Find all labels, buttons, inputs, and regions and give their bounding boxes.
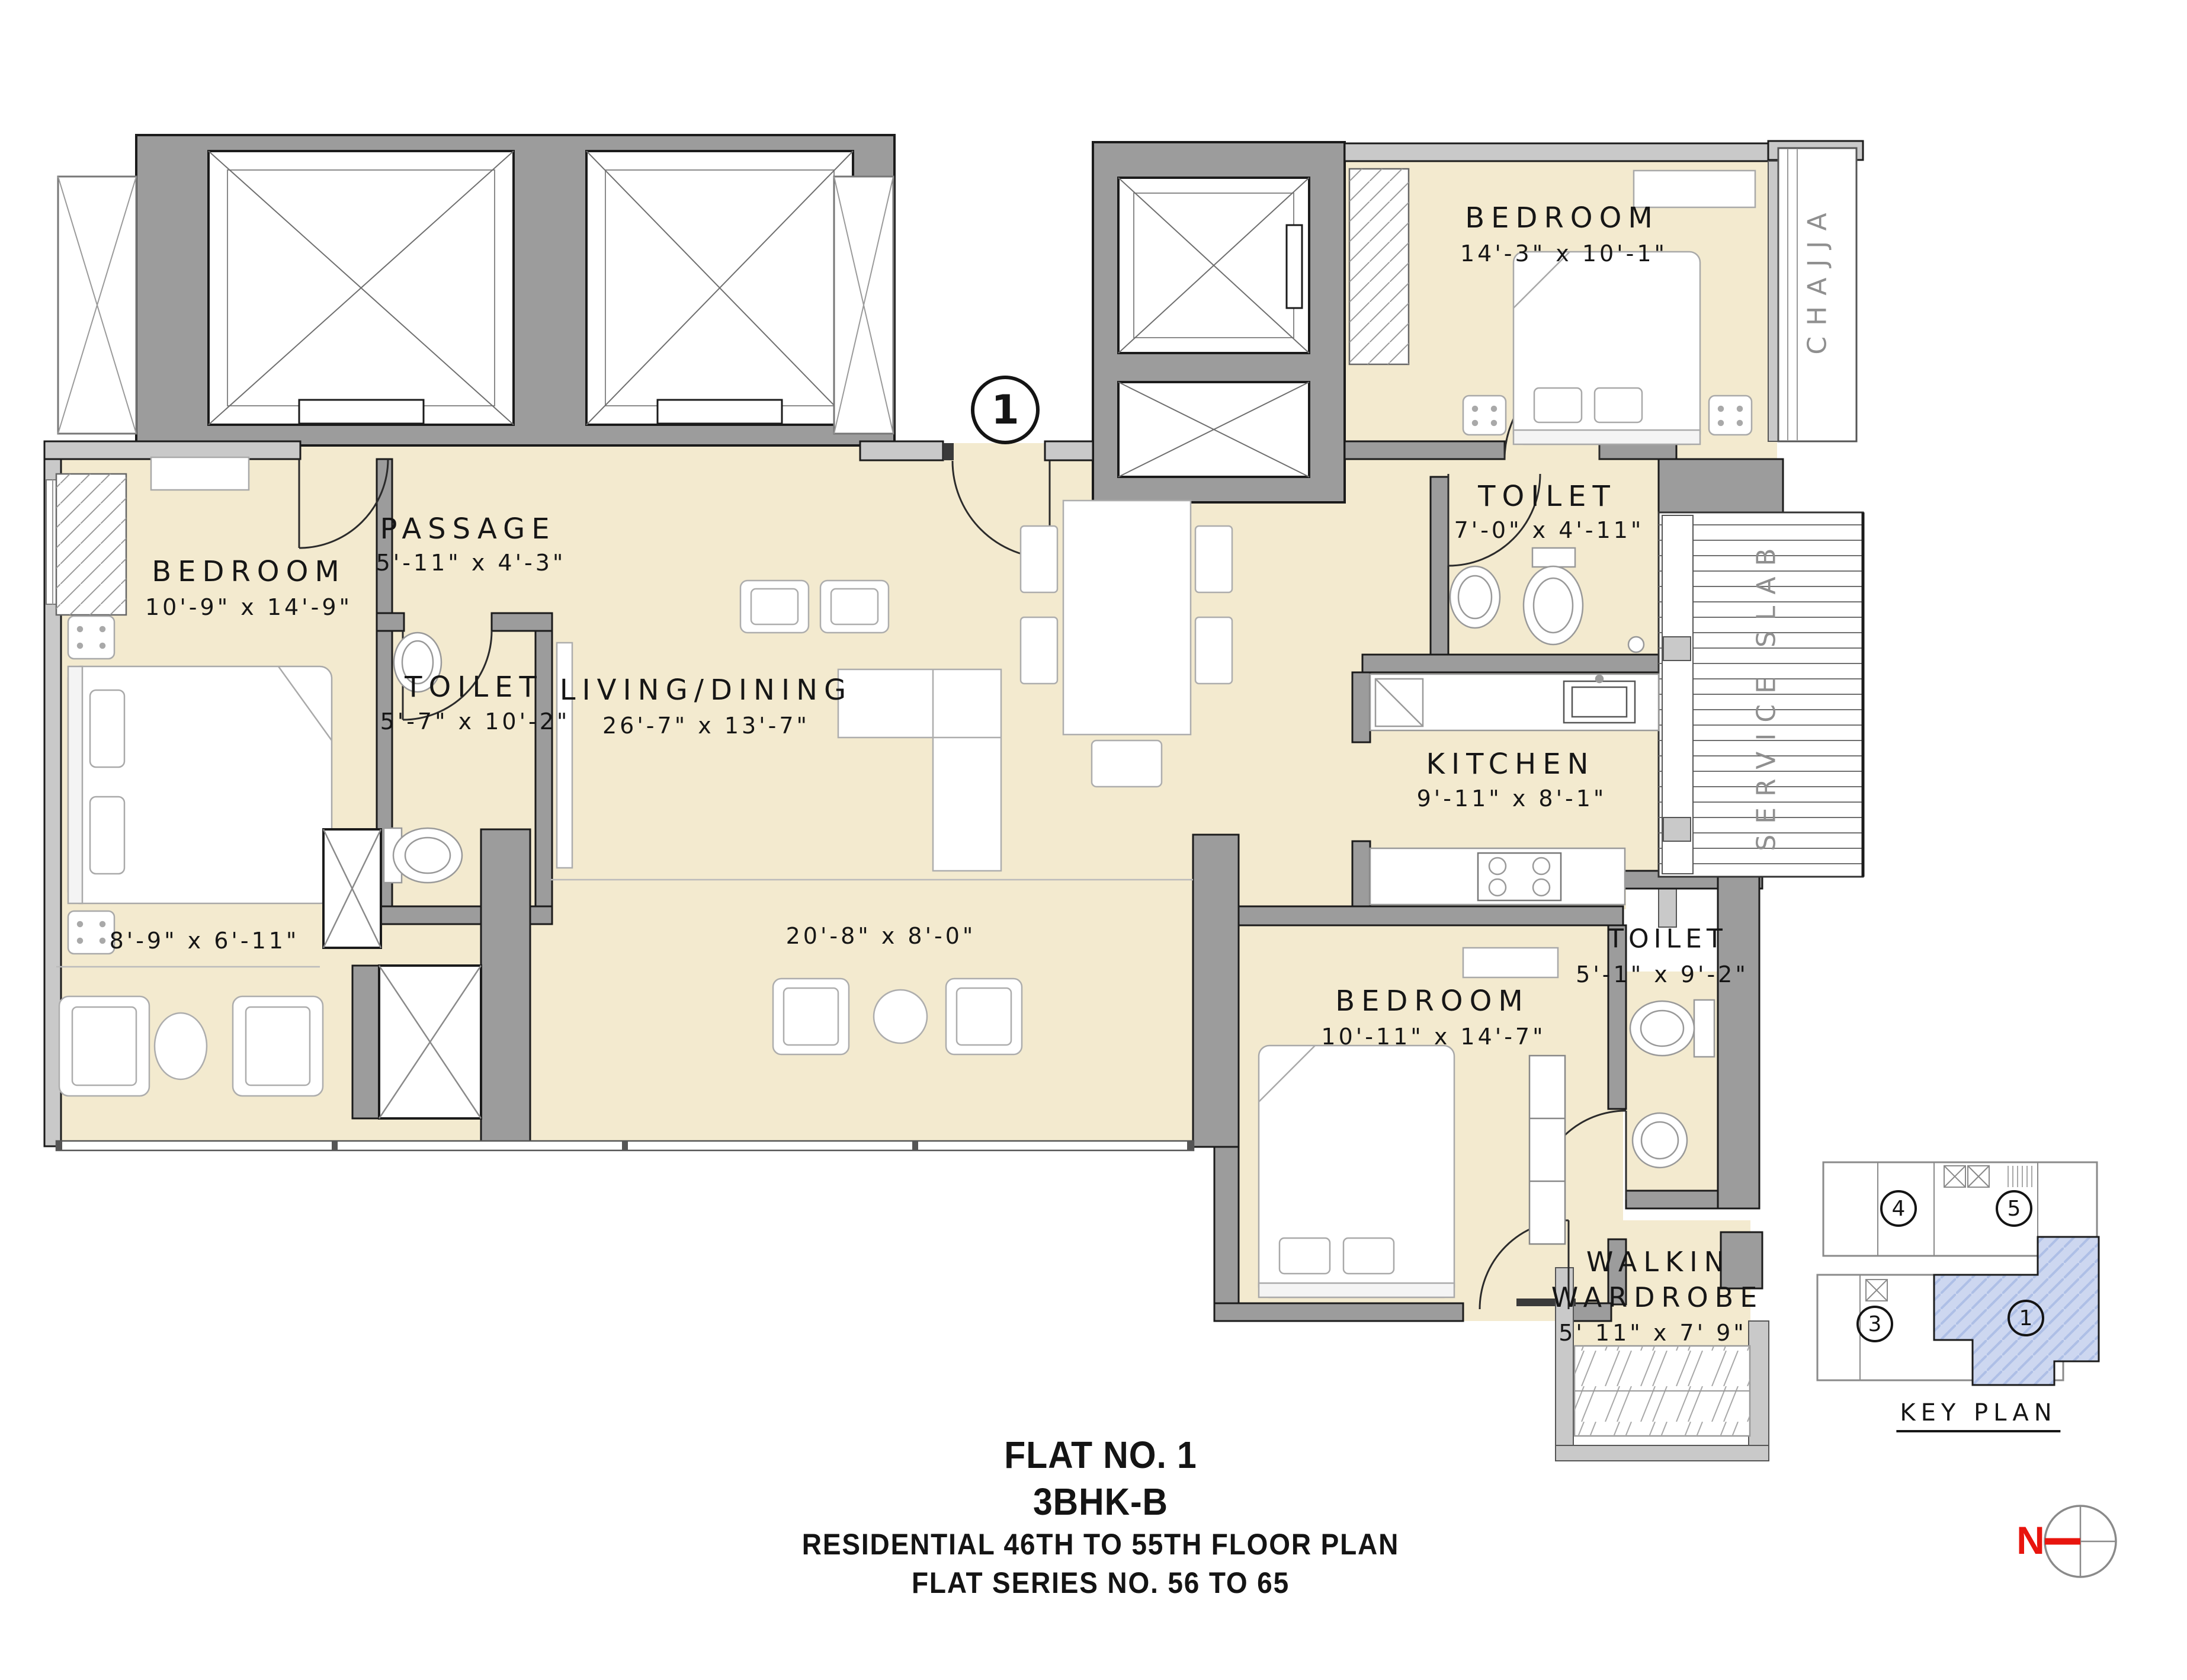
title-flat-no: FLAT NO. 1 [1004,1433,1197,1477]
room-dims-toilet-bottom: 5'-1" x 9'-2" [1576,961,1749,988]
annotation-service-slab: SERVICE SLAB [1752,537,1782,851]
room-label-toilet-bottom: TOILET [1608,924,1727,954]
room-dims-kitchen: 9'-11" x 8'-1" [1417,786,1607,812]
shear-wall-panel-left [58,177,136,434]
lift-shaft-1 [209,151,514,425]
room-dims-toilet-left: 5'-7" x 10'-2" [380,708,570,735]
room-dims-passage: 5'-11" x 4'-3" [376,550,566,576]
lift-core-left [58,135,894,445]
room-label-living-dining: LIVING/DINING [560,674,852,707]
walkin-closet [1574,1346,1750,1436]
room-dims-living-dining: 26'-7" x 13'-7" [602,713,810,739]
lift-core-right [1093,142,1345,502]
key-plan-title: KEY PLAN [1896,1399,2060,1432]
lift-shaft-3 [1118,178,1309,353]
room-label-kitchen: KITCHEN [1426,748,1595,781]
service-shaft [1118,382,1309,477]
title-subtitle2: FLAT SERIES NO. 56 TO 65 [912,1566,1290,1600]
room-dims-bedroom-top-right: 14'-3" x 10'-1" [1460,241,1667,267]
title-flat-type: 3BHK-B [1033,1480,1168,1524]
lift-shaft-2 [586,151,853,425]
title-subtitle1: RESIDENTIAL 46TH TO 55TH FLOOR PLAN [802,1527,1399,1562]
north-compass [2045,1506,2116,1577]
shear-wall-panel-right [834,177,893,434]
deck-dims-left: 8'-9" x 6'-11" [110,928,300,954]
key-plan-unit-3: 3 [1856,1306,1893,1342]
key-plan-unit-1: 1 [2008,1300,2044,1336]
key-plan-unit-5: 5 [1996,1190,2032,1227]
room-label-passage: PASSAGE [380,512,556,546]
key-plan-unit-4: 4 [1880,1190,1917,1227]
room-dims-bedroom-bottom: 10'-11" x 14'-7" [1321,1024,1545,1050]
key-plan-drawing [1817,1162,2099,1385]
room-label-bedroom-bottom: BEDROOM [1335,985,1529,1018]
deck-dims-center: 20'-8" x 8'-0" [786,923,976,949]
room-dims-toilet-top-right: 7'-0" x 4'-11" [1454,517,1644,543]
room-label-walkin-line1: WALKIN [1586,1246,1731,1278]
room-label-toilet-top-right: TOILET [1478,480,1617,513]
room-dims-walkin: 5' 11" x 7' 9" [1559,1320,1747,1346]
room-label-bedroom-top-right: BEDROOM [1465,201,1659,235]
flat-number-marker: 1 [971,376,1040,444]
room-label-bedroom-left: BEDROOM [152,555,346,588]
floor-plan-drawing [0,0,2187,1680]
room-label-walkin-line2: WARDROBE [1551,1281,1764,1313]
floor-plan-page: BEDROOM 14'-3" x 10'-1" TOILET 7'-0" x 4… [0,0,2187,1680]
north-label: N [2016,1518,2045,1563]
room-dims-bedroom-left: 10'-9" x 14'-9" [145,594,352,620]
annotation-chajja: CHAJJA [1803,202,1833,354]
room-label-toilet-left: TOILET [405,671,543,704]
